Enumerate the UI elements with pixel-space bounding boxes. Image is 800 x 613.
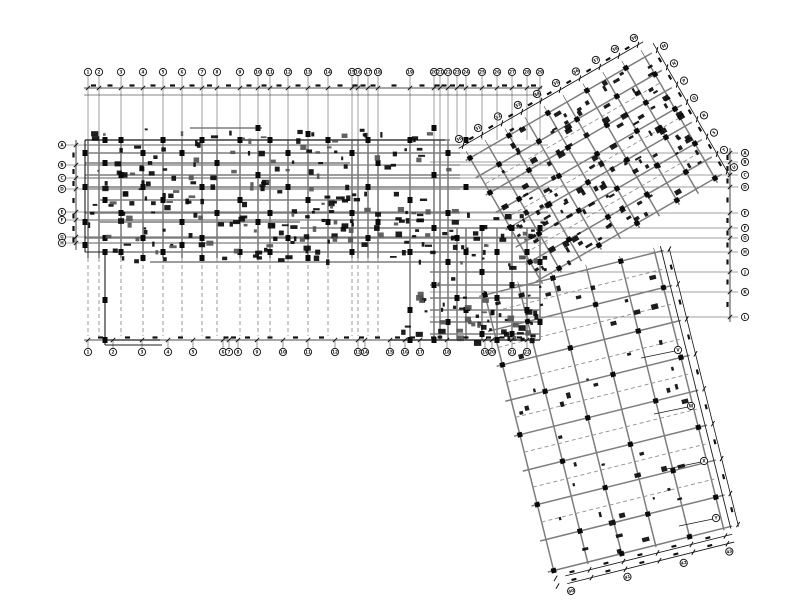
svg-text:26: 26 xyxy=(494,70,500,75)
svg-text:B: B xyxy=(743,160,746,165)
svg-text:W: W xyxy=(689,404,694,409)
svg-text:10: 10 xyxy=(255,70,261,75)
svg-text:28: 28 xyxy=(524,70,530,75)
svg-text:9: 9 xyxy=(256,350,259,355)
svg-text:E: E xyxy=(744,211,747,216)
svg-text:21: 21 xyxy=(509,350,515,355)
svg-text:29: 29 xyxy=(537,70,543,75)
svg-text:17: 17 xyxy=(417,350,423,355)
svg-text:23: 23 xyxy=(454,70,460,75)
svg-text:16: 16 xyxy=(402,350,408,355)
svg-text:F: F xyxy=(61,218,64,223)
lower-wing-group: 40414243 xyxy=(478,244,747,599)
svg-text:F: F xyxy=(744,226,747,231)
svg-text:3: 3 xyxy=(120,70,123,75)
column-layer xyxy=(83,125,548,346)
svg-text:D: D xyxy=(60,187,64,192)
svg-text:3: 3 xyxy=(141,350,144,355)
svg-text:25: 25 xyxy=(479,70,485,75)
svg-text:6: 6 xyxy=(181,70,184,75)
svg-text:7: 7 xyxy=(228,350,231,355)
svg-text:1: 1 xyxy=(87,350,90,355)
dashed-layer xyxy=(88,258,378,336)
svg-text:2: 2 xyxy=(98,70,101,75)
svg-text:B: B xyxy=(60,163,63,168)
svg-text:24: 24 xyxy=(463,70,469,75)
svg-text:L: L xyxy=(744,315,747,320)
upper-wing-group: 30313233343536373839MNPQRSTU xyxy=(453,22,740,286)
svg-text:21: 21 xyxy=(437,70,443,75)
svg-text:11: 11 xyxy=(305,350,311,355)
svg-text:G: G xyxy=(743,236,747,241)
svg-text:5: 5 xyxy=(192,350,195,355)
svg-text:27: 27 xyxy=(509,70,515,75)
svg-text:10: 10 xyxy=(280,350,286,355)
svg-text:16: 16 xyxy=(355,70,361,75)
svg-text:17: 17 xyxy=(365,70,371,75)
svg-text:5: 5 xyxy=(162,70,165,75)
svg-text:J: J xyxy=(743,270,746,275)
svg-text:9: 9 xyxy=(239,70,242,75)
svg-text:8: 8 xyxy=(237,350,240,355)
svg-text:22: 22 xyxy=(445,70,451,75)
dimension-layer xyxy=(72,84,732,526)
svg-text:8: 8 xyxy=(216,70,219,75)
structural-floor-plan: 30313233343536373839MNPQRSTU 40414243 12… xyxy=(0,0,800,613)
svg-text:14: 14 xyxy=(325,70,331,75)
svg-text:19: 19 xyxy=(407,70,413,75)
drawing-sheet: 30313233343536373839MNPQRSTU 40414243 12… xyxy=(0,0,800,613)
svg-text:13: 13 xyxy=(355,350,361,355)
svg-text:H: H xyxy=(743,250,747,255)
svg-text:H: H xyxy=(60,241,64,246)
svg-text:C: C xyxy=(743,173,746,178)
svg-text:4: 4 xyxy=(142,70,145,75)
svg-text:18: 18 xyxy=(375,70,381,75)
svg-text:C: C xyxy=(60,176,63,181)
svg-text:12: 12 xyxy=(332,350,338,355)
svg-text:18: 18 xyxy=(444,350,450,355)
svg-text:1: 1 xyxy=(87,70,90,75)
svg-text:20: 20 xyxy=(489,350,495,355)
svg-text:6: 6 xyxy=(222,350,225,355)
svg-text:4: 4 xyxy=(167,350,170,355)
bubble-layer: 1234567891011121314151617181920212223242… xyxy=(58,68,748,521)
svg-text:11: 11 xyxy=(267,70,273,75)
svg-text:E: E xyxy=(61,210,64,215)
svg-text:7: 7 xyxy=(201,70,204,75)
svg-text:13: 13 xyxy=(305,70,311,75)
svg-text:14: 14 xyxy=(362,350,368,355)
svg-text:22: 22 xyxy=(524,350,530,355)
svg-text:G: G xyxy=(60,235,64,240)
svg-text:12: 12 xyxy=(285,70,291,75)
svg-text:15: 15 xyxy=(387,350,393,355)
svg-text:19: 19 xyxy=(482,350,488,355)
svg-text:D: D xyxy=(743,185,747,190)
svg-text:2: 2 xyxy=(112,350,115,355)
